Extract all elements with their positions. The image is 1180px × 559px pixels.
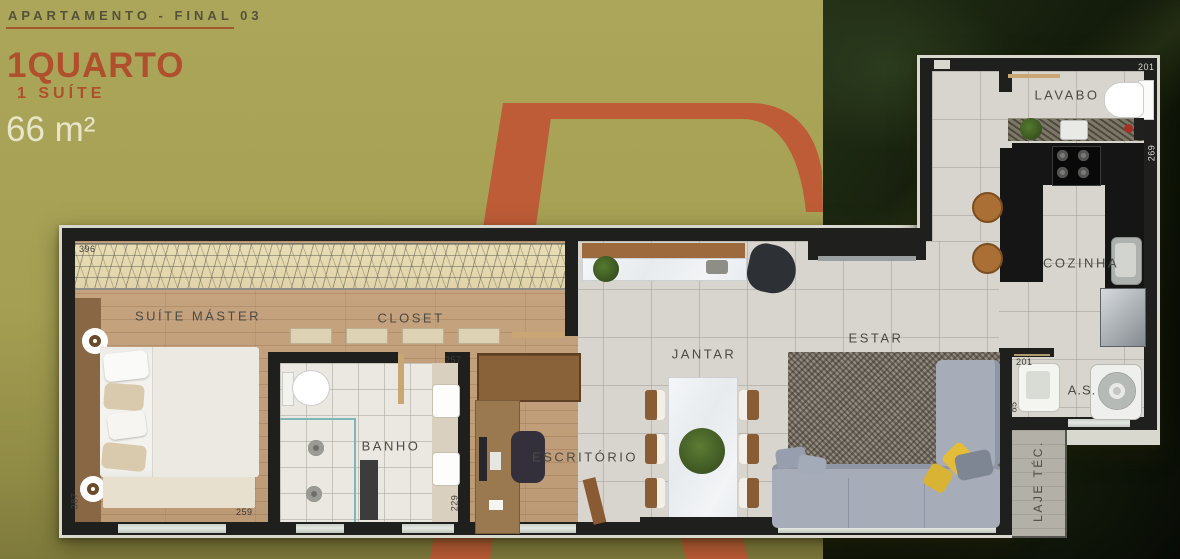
bed-pillow [101,442,147,472]
closet-shelf [458,328,500,344]
stove-burner [1078,167,1089,178]
wall-bath-right [458,352,470,522]
vanity-sink [432,452,460,486]
label-suite: SUÍTE MÁSTER [135,309,261,324]
wall-estar-right [999,352,1012,535]
page-title: APARTAMENTO - FINAL 03 [8,8,263,23]
lavabo-toilet-bowl [1104,82,1144,118]
wardrobe-hatch-strip [75,243,565,290]
kitchen-stool [972,192,1003,223]
closet-shelf [402,328,444,344]
wall-pier-dining [640,517,778,535]
label-banho: BANHO [362,439,421,454]
title-rule [6,27,234,29]
lavabo-counter-end [1134,118,1144,140]
bed-pillow [103,383,145,412]
bed-pillow [106,409,147,440]
window-office [520,524,576,533]
wall-wing-top [920,58,1157,71]
lavabo-sink [1060,120,1088,140]
headline: 1QUARTO [7,46,185,86]
dim-servico-side: 85 [1009,401,1019,412]
bath-door-leaf [398,354,404,404]
dim-suite-side: 387 [69,493,79,510]
label-estar: ESTAR [849,331,904,346]
wall-top-main [62,228,926,241]
stove-burner [1057,167,1068,178]
label-closet: CLOSET [377,311,444,326]
office-wardrobe [477,353,581,402]
dining-chair [739,478,759,508]
shower-glass-horizontal [280,418,356,420]
label-escritorio: ESCRITÓRIO [532,450,638,465]
shower-drain [306,486,322,502]
label-lavabo: LAVABO [1034,88,1099,103]
wall-left [62,228,75,535]
dining-chair [739,390,759,420]
office-monitor [479,437,487,481]
tv-screen [818,256,916,261]
shower-drain [308,440,324,456]
sideboard-decor [706,260,728,274]
dim-suite-width: 396 [79,244,96,254]
window-service [1068,419,1130,427]
window-suite [118,524,226,533]
toilet-bowl [292,370,330,406]
sofa-seam [924,478,925,528]
stove-burner [1078,150,1089,161]
refrigerator [1100,288,1146,347]
shower-glass-vertical [354,418,356,522]
laundry-tub-basin [1026,371,1050,399]
label-servico: A.S. [1068,383,1097,398]
dim-banho-side: 229 [449,495,459,512]
office-keyboard [490,452,501,470]
dining-chair [645,434,665,464]
entry-notch [934,60,950,69]
closet-shelf [290,328,332,344]
wall-bath-left [268,352,280,522]
wall-wing-left [920,58,932,241]
dim-banho-width: 257 [445,355,462,365]
window-bath [296,524,344,533]
vanity-sink [432,384,460,418]
dim-suite-bottom: 259 [236,507,253,517]
suite-door-leaf [512,332,565,338]
floorplan-poster: APARTAMENTO - FINAL 03 1QUARTO 1 SUÍTE 6… [0,0,1180,559]
office-papers [489,500,503,510]
area-value: 66 m² [6,110,95,150]
wall-bath-top [268,352,398,363]
service-measure-line [1014,354,1050,356]
lavabo-plant [1020,118,1042,140]
bed-duvet [152,347,259,477]
label-jantar: JANTAR [672,347,737,362]
wall-closet-living [565,228,578,336]
dim-servico-width: 201 [1016,357,1033,367]
dining-chair [645,478,665,508]
stove-burner [1057,150,1068,161]
closet-shelf [346,328,388,344]
dining-centerpiece-plant [679,428,725,474]
sofa-seam [848,478,849,528]
kitchen-stool [972,243,1003,274]
bed-pillow [103,350,150,382]
dining-chair [739,434,759,464]
dining-chair [645,390,665,420]
label-laje-tec: LAJE TÉC. [1031,440,1045,522]
sideboard-plant [593,256,619,282]
subheadline: 1 SUÍTE [17,85,105,103]
dim-cozinha-side: 269 [1146,145,1156,162]
window-hall [402,524,454,533]
label-cozinha: COZINHA [1043,256,1119,271]
washing-machine-drum [1098,372,1136,410]
dim-lavabo-width: 201 [1138,62,1155,72]
lavabo-decor [1124,124,1133,133]
shower-bench [360,460,378,520]
entry-door-line [1008,74,1060,78]
